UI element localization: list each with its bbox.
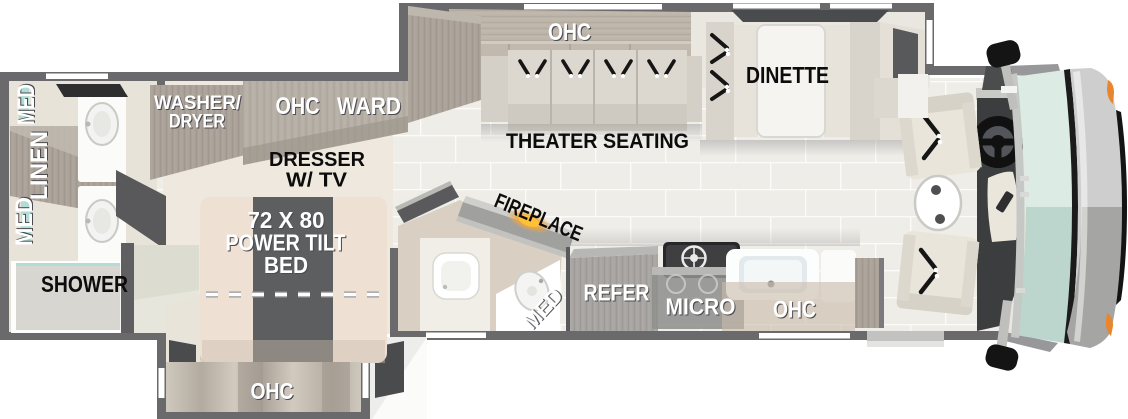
svg-text:DINETTE: DINETTE <box>746 62 829 88</box>
svg-text:OHC: OHC <box>773 297 816 324</box>
svg-text:MICRO: MICRO <box>666 294 736 320</box>
svg-text:SHOWER: SHOWER <box>41 271 128 297</box>
svg-text:DRESSER: DRESSER <box>269 149 366 171</box>
svg-text:MED: MED <box>11 197 38 246</box>
svg-text:MED: MED <box>13 84 40 125</box>
svg-text:LINEN: LINEN <box>26 131 53 200</box>
svg-text:BED: BED <box>264 252 308 278</box>
svg-text:REFER: REFER <box>584 280 650 306</box>
svg-text:OHC: OHC <box>251 378 294 404</box>
svg-text:THEATER SEATING: THEATER SEATING <box>506 130 689 153</box>
svg-text:WARD: WARD <box>337 93 401 120</box>
svg-text:W/ TV: W/ TV <box>286 170 348 192</box>
svg-text:OHC: OHC <box>548 19 591 46</box>
svg-text:DRYER: DRYER <box>169 112 225 133</box>
svg-text:OHC: OHC <box>276 93 320 120</box>
